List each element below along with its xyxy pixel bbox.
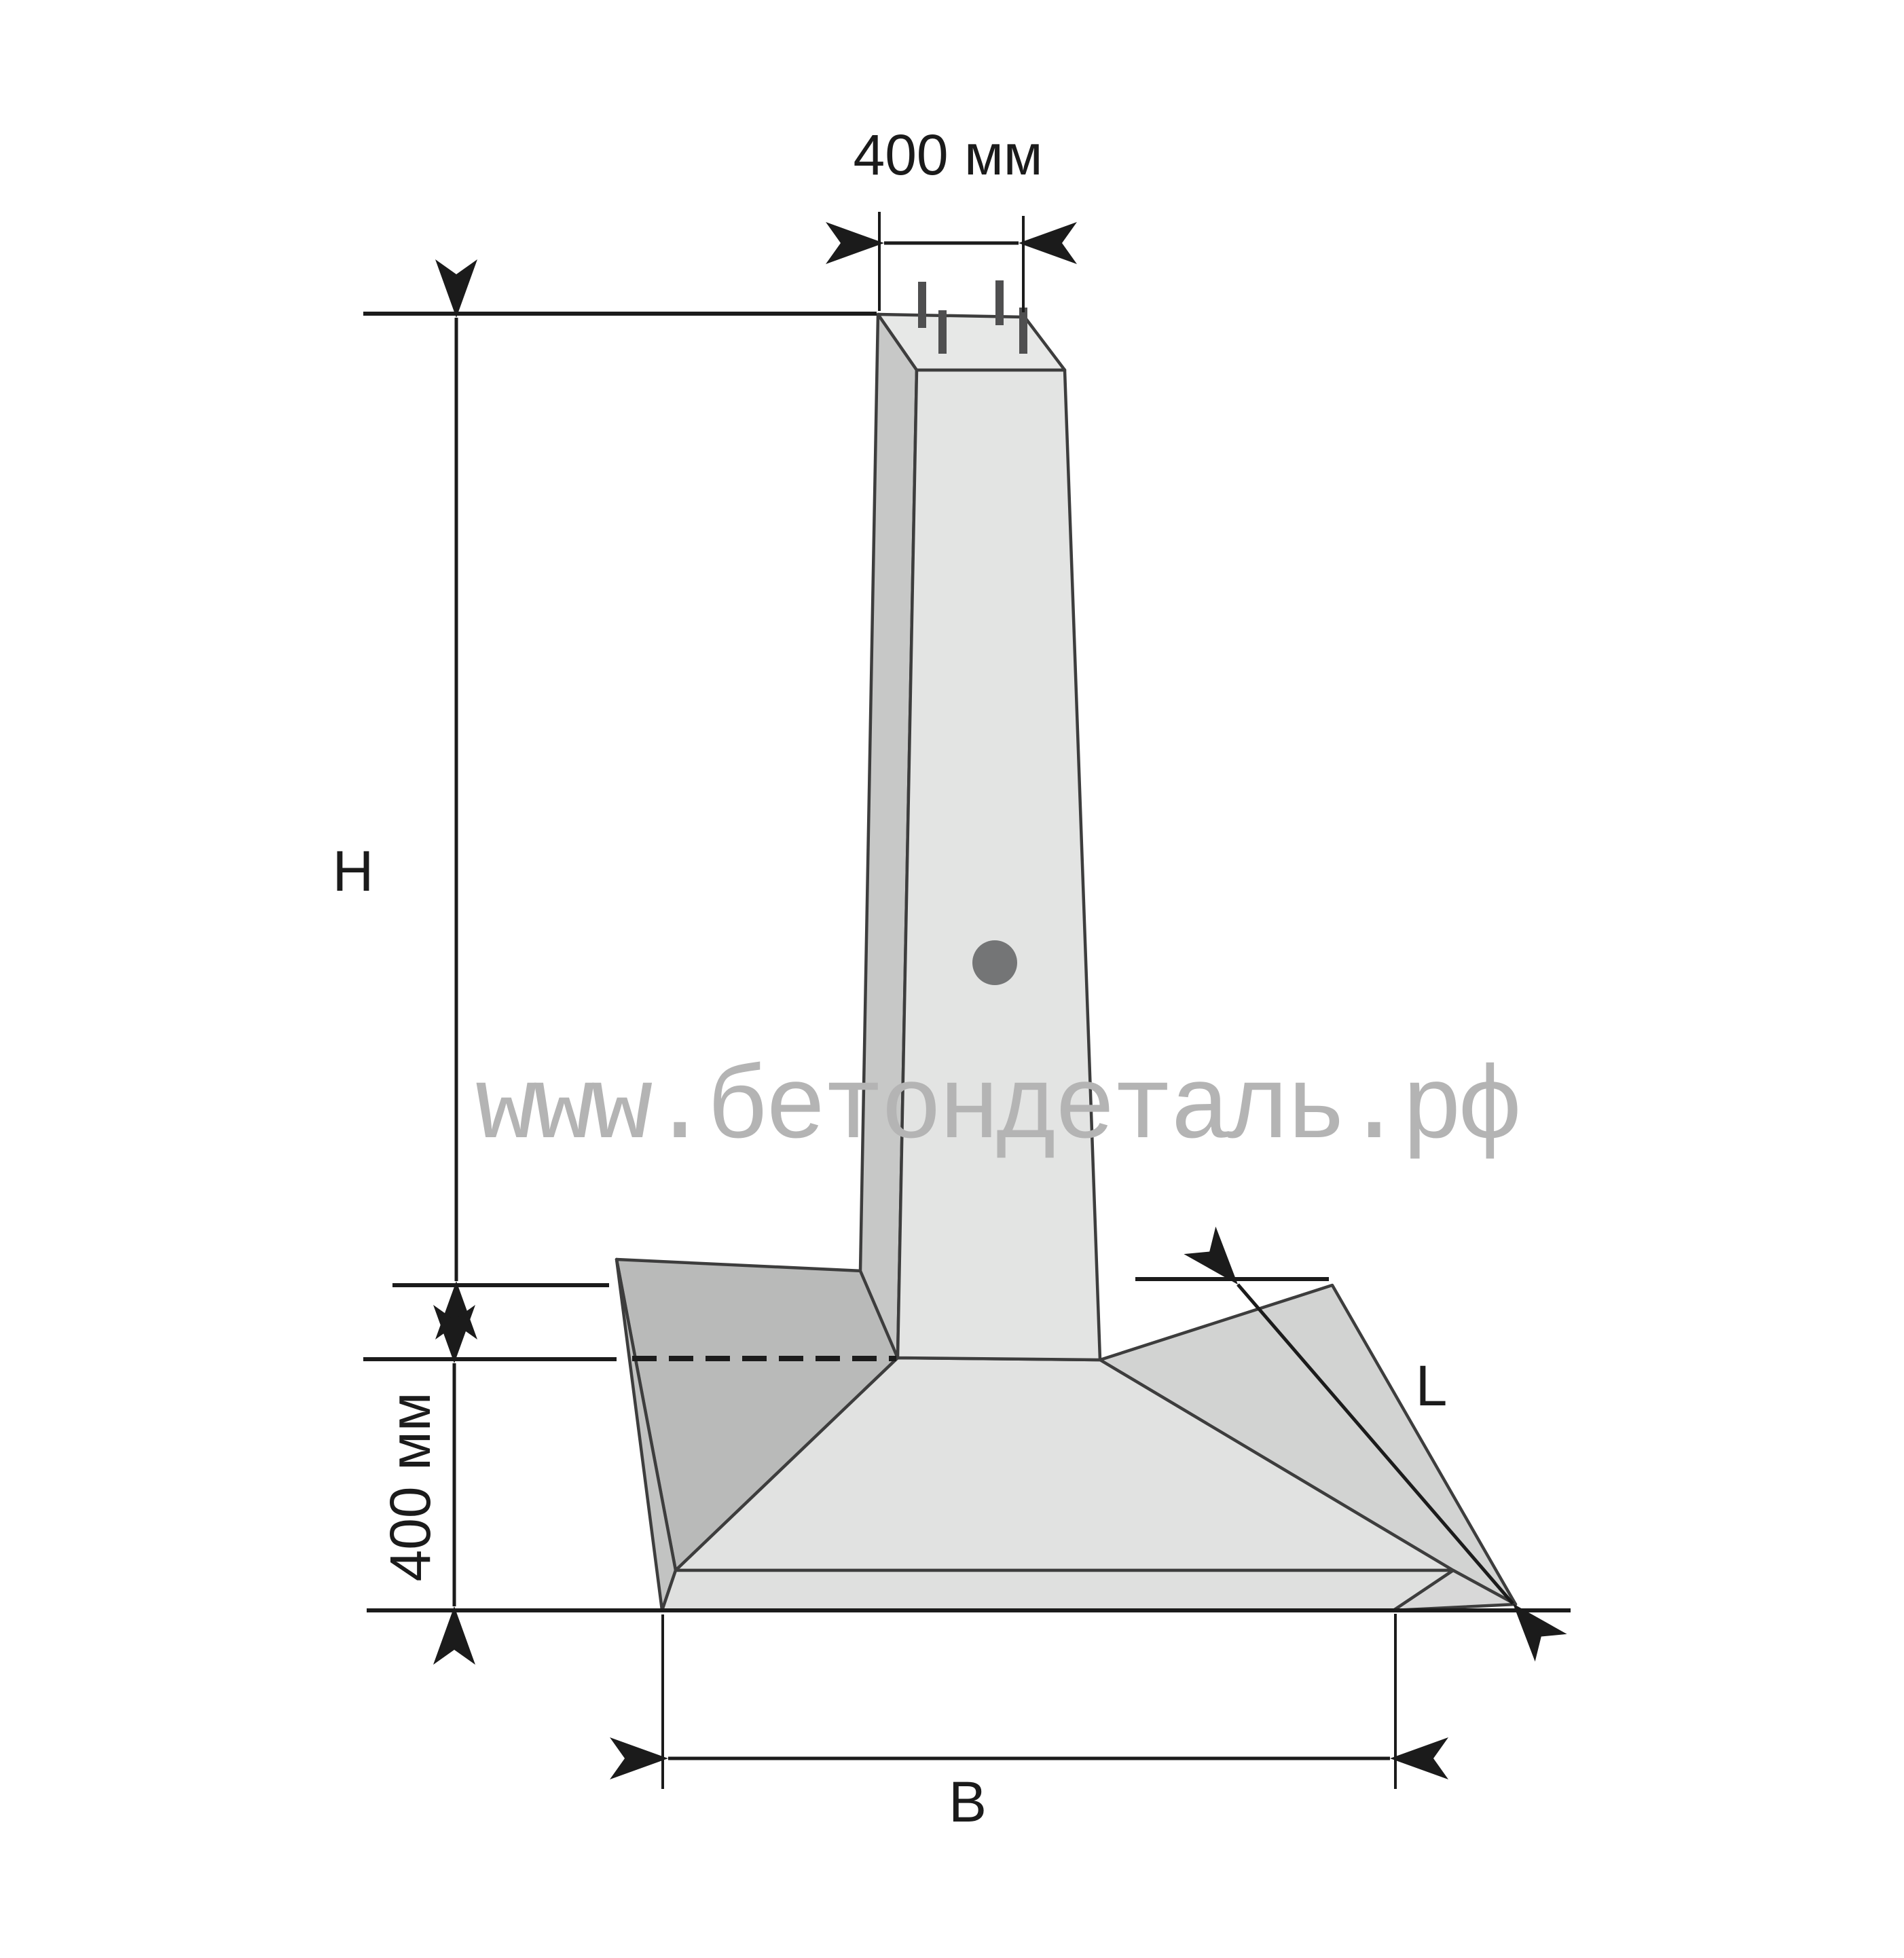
dimension-slab-thickness: 400 мм [363,1359,617,1606]
slab-front-face [662,1570,1453,1610]
rebar-pin-icon [918,282,926,328]
dimension-base-width: B [663,1614,1395,1834]
dimension-label-base-depth: L [1416,1354,1448,1418]
dimension-top-width: 400 мм [854,123,1043,312]
rebar-pin-icon [938,310,947,354]
dimension-label-height: H [333,839,374,903]
foundation-diagram-page: www.бетондеталь.рф 400 мм H 400 мм [0,0,1904,1958]
rebar-pin-icon [1019,308,1027,354]
rebar-pin-icon [995,280,1004,325]
column-front-face [898,370,1100,1360]
foundation-diagram: www.бетондеталь.рф 400 мм H 400 мм [0,0,1904,1958]
watermark: www.бетондеталь.рф [475,1051,1518,1168]
dimension-label-slab-thickness: 400 мм [378,1392,442,1582]
foundation-body [617,280,1516,1610]
lifting-hole-icon [972,940,1017,985]
dimension-label-top-width: 400 мм [854,123,1043,187]
dimension-label-base-width: B [949,1770,987,1834]
